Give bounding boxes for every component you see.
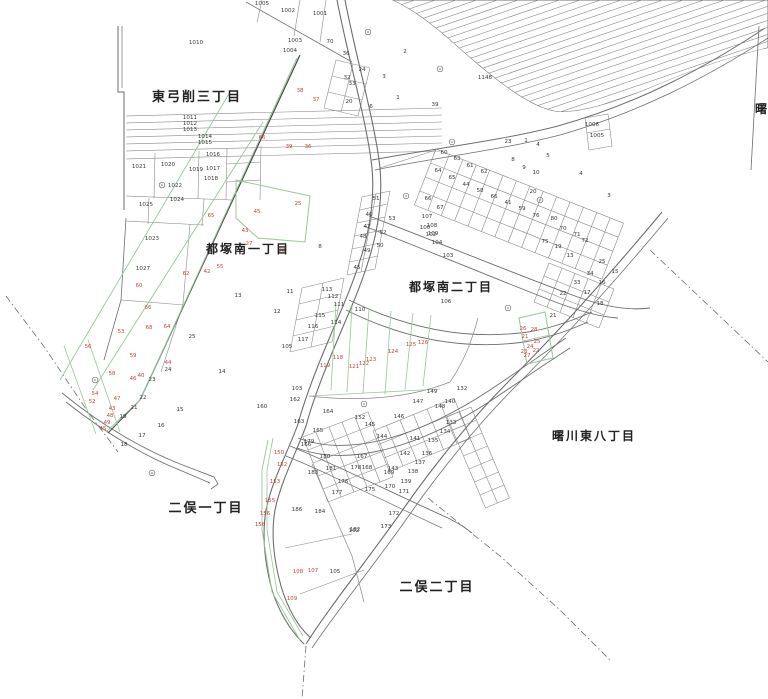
parcel-number: 173 (381, 524, 392, 530)
parcel-boundary-line (226, 148, 227, 200)
administrative-boundary-dashed (302, 646, 306, 699)
parcel-number: 62 (480, 169, 487, 175)
survey-number: 21 (522, 334, 529, 340)
district-label: 都塚南二丁目 (408, 279, 493, 294)
survey-marker-icon (437, 66, 443, 72)
survey-number: 153 (270, 479, 280, 485)
parcel-number: 177 (332, 490, 343, 496)
survey-number: 121 (349, 364, 359, 370)
survey-line-green (93, 122, 263, 390)
parcel-number: 117 (298, 337, 309, 343)
parcel-number: 3 (607, 193, 611, 199)
parcel-boundary-line (126, 221, 204, 225)
parcel-boundary-line (126, 115, 442, 123)
survey-number: 66 (145, 305, 152, 311)
parcel-number: 141 (410, 436, 421, 442)
parcel-number: 1017 (206, 166, 221, 172)
parcel-number: 1 (524, 138, 528, 144)
parcel-number: 179 (304, 439, 315, 445)
parcel-number: 49 (363, 248, 371, 254)
parcel-boundary-line (246, 2, 352, 62)
parcel-number: 65 (448, 175, 456, 181)
parcel-boundary-line (121, 300, 184, 305)
parcel-number: 112 (328, 294, 339, 300)
parcel-number: 70 (326, 39, 334, 45)
parcel-boundary-line (202, 199, 204, 226)
parcel-number: 169 (384, 470, 395, 476)
parcel-boundary-line (211, 477, 218, 489)
parcel-number: 115 (315, 313, 326, 319)
parcel-number: 24 (164, 367, 172, 373)
survey-number: 27 (524, 353, 531, 359)
parcel-number: 6 (369, 104, 373, 110)
survey-number: 109 (287, 596, 298, 602)
parcel-number: 1015 (198, 140, 213, 146)
survey-number: 59 (130, 353, 137, 359)
parcel-number: 25 (188, 334, 196, 340)
parcel-number: 116 (308, 324, 319, 330)
parcel-number: 1013 (183, 127, 198, 133)
parcel-boundary-line (154, 153, 155, 198)
district-label: 都塚南一丁目 (205, 241, 290, 256)
survey-number: 65 (208, 213, 215, 219)
parcel-number: 1016 (206, 152, 221, 158)
hatch-band (356, 0, 768, 172)
parcel-number: 16 (157, 423, 165, 429)
parcel-boundary-line (126, 108, 442, 116)
survey-line-green (347, 306, 352, 392)
survey-line-green (262, 440, 300, 640)
parcel-number: 61 (466, 163, 474, 169)
survey-line-green (64, 346, 96, 434)
parcel-number: 132 (457, 386, 468, 392)
district-label: 曙 (755, 102, 768, 116)
parcel-number: 18 (596, 301, 604, 307)
parcel-number: 113 (322, 287, 333, 293)
parcel-number: 1002 (281, 8, 295, 14)
parcel-number: 4 (579, 171, 583, 177)
parcel-number: 1027 (136, 266, 151, 272)
parcel-grid (447, 407, 510, 508)
district-label: 二俣二丁目 (399, 579, 474, 595)
parcel-boundary-line (380, 150, 436, 168)
parcel-number: 5 (546, 153, 550, 159)
parcel-number: 139 (401, 479, 412, 485)
parcel-number: 103 (443, 253, 454, 259)
parcel-number: 17 (583, 290, 591, 296)
survey-number: 25 (295, 201, 302, 207)
parcel-number: 134 (440, 429, 451, 435)
survey-number: 45 (254, 209, 261, 215)
survey-marker-icon (449, 139, 455, 145)
parcel-number: 12 (273, 309, 280, 315)
parcel-number: 176 (338, 479, 349, 485)
parcel-number: 175 (365, 487, 376, 493)
parcel-number: 1021 (132, 164, 147, 170)
survey-marker-icon (361, 401, 367, 407)
parcel-number: 63 (453, 156, 461, 162)
survey-number: 40 (138, 373, 145, 379)
parcel-number: 67 (436, 205, 444, 211)
parcel-number: 19 (554, 244, 562, 250)
survey-marker-icon (365, 29, 371, 35)
parcel-number: 75 (541, 239, 549, 245)
parcel-boundary-line (260, 146, 261, 200)
survey-number: 155 (265, 498, 275, 504)
parcel-number: 167 (357, 454, 368, 460)
parcel-number: 19 (119, 414, 127, 420)
survey-number: 68 (146, 325, 153, 331)
parcel-number: 20 (345, 99, 353, 105)
parcel-number: 1018 (204, 176, 219, 182)
parcel-boundary-line (450, 318, 478, 382)
parcel-number: 39 (431, 102, 439, 108)
parcel-number: 22 (559, 291, 566, 297)
survey-number: 37 (313, 97, 320, 103)
parcel-number: 13 (234, 293, 242, 299)
parcel-number: 1023 (145, 236, 160, 242)
parcel-number: 17 (138, 433, 146, 439)
parcel-number: 181 (326, 466, 337, 472)
parcel-number: 178 (351, 465, 362, 471)
survey-number: 58 (109, 371, 116, 377)
survey-number: 126 (418, 340, 429, 346)
parcel-number: 145 (365, 422, 376, 428)
survey-number: 39 (286, 144, 293, 150)
parcel-number: 47 (363, 224, 371, 230)
parcel-number: 104 (432, 240, 443, 246)
parcel-number: 105 (282, 344, 293, 350)
survey-number: 44 (165, 360, 172, 366)
parcel-number: 152 (355, 415, 366, 421)
survey-line-green (140, 58, 297, 400)
survey-number: 53 (118, 329, 125, 335)
parcel-number: 36 (342, 51, 350, 57)
parcel-number: 171 (399, 489, 410, 495)
survey-number: 25 (534, 339, 541, 345)
cadastral-map-page: 1005100210011003100410107036101110121013… (0, 0, 768, 699)
parcel-boundary-line (320, 0, 326, 42)
parcel-number: 133 (446, 420, 457, 426)
parcel-number: 10 (532, 170, 540, 176)
parcel-number: 184 (315, 509, 326, 515)
survey-number: 56 (85, 344, 92, 350)
parcel-number: 23 (148, 377, 156, 383)
parcel-number: 168 (362, 465, 373, 471)
survey-number: 43 (109, 406, 116, 412)
survey-number: 42 (204, 269, 211, 275)
survey-number: 48 (107, 413, 114, 419)
survey-marker-icon (537, 197, 543, 203)
parcel-boundary-line (290, 446, 472, 533)
parcel-number: 33 (348, 81, 356, 87)
parcel-number: 1 (396, 95, 400, 101)
survey-number: 28 (531, 327, 538, 333)
parcel-number: 172 (389, 511, 400, 517)
parcel-number: 21 (130, 405, 138, 411)
parcel-number: 64 (434, 168, 442, 174)
parcel-number: 186 (292, 507, 303, 513)
parcel-number: 50 (376, 243, 384, 249)
parcel-number: 180 (320, 454, 331, 460)
survey-number: 66 (259, 135, 266, 141)
parcel-boundary-line (285, 534, 352, 548)
parcel-number: 24 (358, 67, 366, 73)
parcel-number: 1148 (478, 75, 493, 81)
parcel-number: 160 (257, 404, 268, 410)
parcel-number: 1019 (189, 167, 204, 173)
parcel-boundary-line (369, 216, 650, 309)
parcel-number: 46 (365, 212, 373, 218)
survey-number: 45 (100, 426, 107, 432)
survey-number: 119 (320, 363, 331, 369)
parcel-number: 3 (382, 74, 386, 80)
parcel-number: 1003 (288, 38, 303, 44)
parcel-boundary-line (126, 143, 442, 151)
parcel-number: 9 (522, 165, 526, 171)
parcel-number: 11 (286, 289, 294, 295)
parcel-number: 34 (586, 271, 594, 277)
survey-marker-icon (159, 182, 165, 188)
parcel-number: 114 (331, 320, 342, 326)
survey-number: 46 (130, 376, 137, 382)
survey-number: 60 (136, 283, 143, 289)
parcel-number: 135 (428, 438, 439, 444)
parcel-number: 80 (550, 216, 558, 222)
parcel-number: 2 (403, 49, 407, 55)
parcel-number: 60 (440, 150, 448, 156)
parcel-number: 162 (290, 397, 301, 403)
parcel-number: 13 (566, 253, 574, 259)
parcel-number: 8 (318, 244, 322, 250)
parcel-boundary-line (118, 26, 124, 210)
survey-number: 55 (217, 264, 224, 270)
parcel-number: 59 (518, 206, 526, 212)
survey-number: 36 (305, 144, 312, 150)
survey-number: 124 (388, 349, 399, 355)
survey-number: 38 (297, 88, 304, 94)
district-label: 二俣一丁目 (168, 500, 243, 516)
parcel-number: 165 (313, 428, 324, 434)
parcel-number: 110 (355, 307, 366, 313)
survey-number: 26 (520, 326, 527, 332)
parcel-number: 1024 (170, 197, 185, 203)
parcel-number: 18 (120, 442, 128, 448)
parcel-number: 14 (218, 369, 226, 375)
survey-number: 118 (333, 355, 344, 361)
parcel-number: 105 (330, 569, 341, 575)
district-label: 曙川東八丁目 (552, 428, 636, 443)
parcel-number: 1025 (139, 202, 154, 208)
parcel-number: 71 (573, 232, 581, 238)
parcel-number: 20 (529, 189, 537, 195)
parcel-number: 1020 (161, 162, 176, 168)
survey-marker-icon (403, 193, 409, 199)
parcel-number: 16 (598, 280, 606, 286)
survey-number: 52 (89, 399, 96, 405)
parcel-number: 53 (388, 216, 396, 222)
parcel-boundary-line (198, 151, 199, 199)
survey-number: 125 (406, 342, 416, 348)
parcel-number: 170 (385, 484, 396, 490)
administrative-boundary-dashed (650, 250, 768, 362)
parcel-number: 15 (176, 407, 184, 413)
parcel-number: 146 (394, 414, 405, 420)
parcel-number: 1010 (189, 40, 204, 46)
parcel-number: 23 (504, 139, 512, 145)
parcel-boundary-line (161, 224, 190, 372)
survey-number: 22 (533, 348, 540, 354)
parcel-boundary-line (364, 226, 618, 318)
parcel-number: 111 (334, 302, 345, 308)
survey-marker-icon (505, 305, 511, 311)
parcel-number: 33 (573, 280, 581, 286)
parcel-number: 70 (559, 226, 567, 232)
parcel-number: 76 (532, 213, 540, 219)
parcel-number: 103 (292, 386, 303, 392)
survey-number: 47 (114, 396, 121, 402)
parcel-number: 4 (536, 142, 540, 148)
parcel-boundary-line (126, 129, 442, 137)
parcel-number: 163 (294, 419, 305, 425)
parcel-number: 107 (422, 214, 433, 220)
parcel-number: 1004 (283, 48, 298, 54)
parcel-number: 109 (428, 231, 439, 237)
survey-number: 64 (164, 324, 171, 330)
cadastral-map: 1005100210011003100410107036101110121013… (0, 0, 768, 699)
parcel-boundary-line (227, 162, 261, 164)
survey-line-green (405, 313, 413, 390)
survey-number: 158 (255, 522, 266, 528)
parcel-number: 22 (139, 395, 146, 401)
parcel-number: 149 (427, 389, 438, 395)
parcel-number: 1005 (590, 133, 605, 139)
parcel-number: 66 (490, 194, 498, 200)
parcel-number: 66 (424, 196, 432, 202)
survey-number: 150 (274, 450, 285, 456)
parcel-number: 45 (353, 265, 361, 271)
parcel-boundary-line (126, 151, 442, 159)
survey-number: 107 (308, 568, 318, 574)
parcel-number: 25 (598, 259, 606, 265)
parcel-number: 1005 (255, 1, 270, 7)
parcel-number: 44 (462, 182, 470, 188)
survey-number: 43 (242, 228, 249, 234)
survey-marker-icon (92, 377, 98, 383)
parcel-number: 72 (581, 238, 588, 244)
survey-number: 152 (277, 462, 287, 468)
parcel-boundary-line (126, 136, 442, 144)
parcel-number: 41 (504, 200, 512, 206)
parcel-grid (414, 149, 623, 279)
parcel-number: 1022 (168, 183, 182, 189)
parcel-number: 138 (408, 469, 419, 475)
parcel-boundary-line (104, 218, 126, 360)
parcel-number: 58 (476, 188, 484, 194)
parcel-number: 52 (379, 230, 386, 236)
parcel-number: 15 (611, 269, 619, 275)
survey-marker-icon (149, 470, 155, 476)
parcel-number: 106 (441, 299, 452, 305)
parcel-boundary-line (66, 402, 210, 483)
survey-number: 62 (183, 271, 190, 277)
parcel-number: 8 (511, 157, 515, 163)
survey-number: 108 (293, 569, 304, 575)
parcel-number: 1006 (585, 122, 600, 128)
parcel-number: 48 (359, 234, 367, 240)
survey-number: 123 (366, 357, 376, 363)
parcel-number: 147 (413, 399, 424, 405)
parcel-number: 140 (445, 399, 456, 405)
parcel-number: 102 (349, 528, 360, 534)
parcel-boundary-line (126, 122, 442, 130)
survey-number: 54 (92, 391, 99, 397)
parcel-number: 136 (422, 451, 433, 457)
parcel-number: 137 (415, 460, 426, 466)
parcel-number: 144 (377, 434, 388, 440)
survey-line-green (423, 315, 431, 386)
survey-line-green (363, 309, 369, 393)
parcel-number: 1001 (313, 11, 328, 17)
parcel-number: 108 (427, 223, 438, 229)
parcel-number: 142 (400, 451, 411, 457)
parcel-number: 164 (323, 409, 334, 415)
parcel-number: 51 (372, 196, 380, 202)
survey-number: 156 (260, 511, 271, 517)
parcel-number: 183 (308, 470, 319, 476)
district-label: 東弓削三丁目 (152, 89, 242, 105)
survey-line-green (311, 389, 440, 396)
parcel-number: 21 (549, 313, 557, 319)
